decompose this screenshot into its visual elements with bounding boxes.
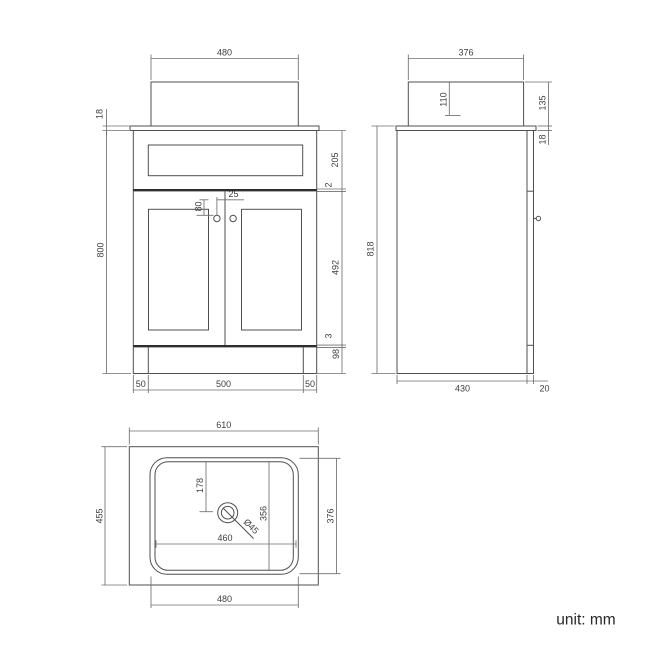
side-cabinet-outline <box>397 131 527 374</box>
dim-front-worktop-thickness: 18 <box>95 109 130 136</box>
dim-front-drawer-height-label: 205 <box>330 152 340 167</box>
dim-side-basin-height: 135 <box>525 82 552 126</box>
dim-front-basin-width-label: 480 <box>217 48 232 58</box>
front-structure <box>130 82 319 374</box>
side-view: 376 110 135 18 818 <box>366 48 553 394</box>
front-left-knob <box>214 215 220 221</box>
dim-top-worktop-depth: 455 <box>95 447 128 585</box>
dim-side-basin-inner-depth: 110 <box>439 83 461 116</box>
dim-side-bottom: 430 20 <box>397 375 550 394</box>
dim-front-right-stack: 205 2 492 3 98 <box>317 131 346 374</box>
dim-front-handle-inset: 25 <box>217 189 244 216</box>
dim-front-door-height-label: 492 <box>331 260 341 275</box>
dim-top-drain-setback: 178 <box>195 462 213 512</box>
dim-side-door-thickness-label: 20 <box>539 384 549 394</box>
dim-top-bowl-inner-width: 460 <box>156 533 296 548</box>
dim-top-bowl-outer-width-label: 480 <box>217 594 232 604</box>
dim-side-basin-inner-depth-label: 110 <box>439 92 449 106</box>
top-structure <box>129 447 318 585</box>
dim-top-bowl-outer-depth-label: 376 <box>326 508 336 523</box>
top-view: 610 455 178 356 376 <box>95 420 341 608</box>
dim-front-plinth-height-label: 98 <box>331 349 341 359</box>
dim-top-worktop-depth-label: 455 <box>95 508 105 523</box>
dim-top-bowl-outer-width: 480 <box>151 577 298 609</box>
front-right-knob <box>230 215 236 221</box>
front-view: 480 18 800 205 2 <box>95 48 347 394</box>
dim-side-basin-depth: 376 <box>408 48 523 81</box>
dim-front-opening-width-label: 500 <box>216 379 231 389</box>
dim-front-cabinet-height-label: 800 <box>96 242 106 257</box>
dim-top-bowl-inner-depth: 356 <box>259 462 270 571</box>
front-basin-outline <box>151 82 298 126</box>
dim-front-worktop-thickness-label: 18 <box>95 109 105 119</box>
top-bowl-outer-outline <box>150 458 298 575</box>
dim-side-basin-height-label: 135 <box>538 95 548 110</box>
top-bowl-inner-outline <box>155 462 293 571</box>
vanity-technical-drawing-page: 480 18 800 205 2 <box>0 0 650 650</box>
dim-top-worktop-width: 610 <box>129 420 318 445</box>
side-worktop-outline <box>396 126 536 131</box>
front-right-door-panel <box>242 209 302 330</box>
dim-top-bowl-inner-width-label: 460 <box>217 533 232 543</box>
dim-front-top-gap-label: 2 <box>324 182 334 187</box>
side-knob-cap <box>536 216 540 220</box>
dim-side-worktop-thickness-label: 18 <box>538 134 548 144</box>
dim-side-total-height: 818 <box>366 126 396 374</box>
side-structure <box>396 82 541 374</box>
dim-front-left-stile-label: 50 <box>136 379 146 389</box>
unit-label: unit: mm <box>556 612 615 629</box>
dim-front-bottom: 50 500 50 <box>133 375 316 393</box>
front-drawer-panel <box>148 145 302 176</box>
front-dimensions: 480 18 800 205 2 <box>95 48 347 394</box>
side-basin-outline <box>408 82 523 126</box>
dim-front-right-stile-label: 50 <box>305 379 315 389</box>
vanity-technical-drawing: 480 18 800 205 2 <box>0 0 650 650</box>
dim-top-bowl-outer-depth: 376 <box>300 458 341 573</box>
dim-side-worktop-thickness: 18 <box>538 126 553 145</box>
dim-side-cabinet-depth-label: 430 <box>455 384 470 394</box>
dim-top-worktop-width-label: 610 <box>216 420 231 430</box>
dim-side-total-height-label: 818 <box>366 241 376 256</box>
dim-front-handle-inset-label: 25 <box>228 189 238 199</box>
dim-front-bottom-gap-label: 3 <box>324 333 334 338</box>
dim-front-basin-width: 480 <box>151 48 298 81</box>
front-worktop-outline <box>130 126 319 131</box>
dim-front-handle-drop-label: 80 <box>194 201 204 211</box>
front-left-door-panel <box>149 209 209 330</box>
dim-top-bowl-inner-depth-label: 356 <box>259 506 269 521</box>
dim-front-handle-drop: 80 <box>194 200 214 216</box>
dim-side-basin-depth-label: 376 <box>458 48 473 58</box>
dim-top-drain-setback-label: 178 <box>195 478 205 493</box>
side-door-panel <box>527 131 534 374</box>
dim-front-cabinet-height: 800 <box>96 131 132 374</box>
